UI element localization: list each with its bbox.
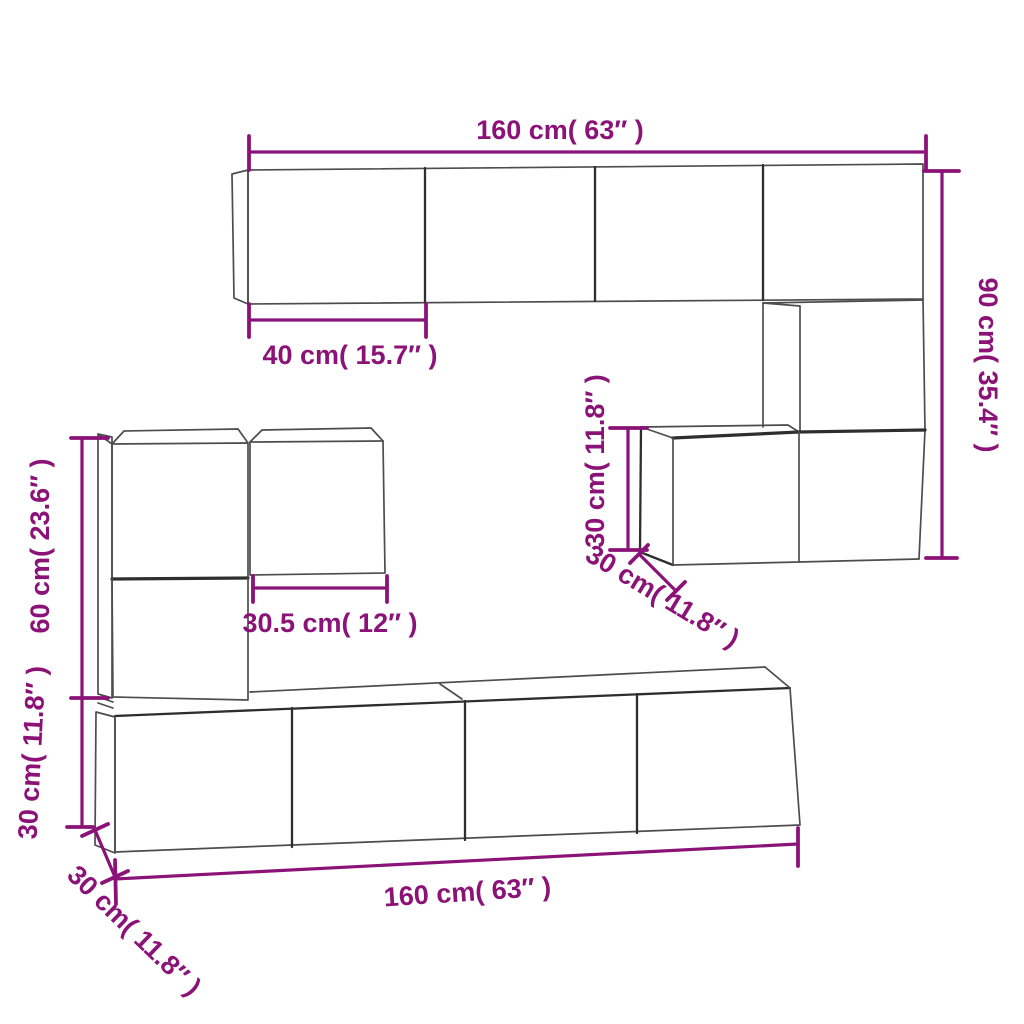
dimension-bottom-width-line	[115, 844, 798, 879]
dimension-upper-box-width: 30.5 cm( 12″ )	[242, 576, 417, 638]
left-upper-right-box-front	[250, 441, 385, 575]
left-cabinet-middle-divider	[112, 578, 248, 579]
dimension-bottom-width-label: 160 cm( 63″ )	[383, 872, 552, 913]
left-lower-box-front	[112, 578, 248, 700]
top-cabinet-front	[248, 164, 923, 304]
dimension-top-width: 160 cm( 63″ )	[249, 115, 926, 170]
dimension-middle-box-depth: 30 cm( 11.8″ )	[581, 539, 745, 654]
bottom-cabinet-top-face-junction	[440, 684, 462, 699]
dimension-bottom-width: 160 cm( 63″ )	[115, 828, 798, 913]
middle-box	[640, 425, 799, 565]
dimension-upper-box-label: 30.5 cm( 12″ )	[242, 608, 417, 638]
diagram-canvas: 160 cm( 63″ ) 40 cm( 15.7″ ) 90 cm( 35.4…	[0, 0, 1024, 1024]
left-upper-right-box-top-face	[250, 428, 383, 442]
bottom-cabinet-top-face-back-edge	[250, 667, 765, 692]
dimension-top-door-width: 40 cm( 15.7″ )	[249, 304, 438, 370]
left-upper-box-front	[112, 443, 248, 579]
dimension-middle-box-depth-label: 30 cm( 11.8″ )	[581, 539, 745, 654]
middle-box-front-face	[673, 432, 799, 565]
bottom-cabinet	[95, 667, 800, 853]
dimension-bottom-width-tick-left	[115, 860, 116, 904]
dimension-top-width-label: 160 cm( 63″ )	[476, 115, 644, 145]
dimension-bottom-depth-line	[95, 830, 115, 877]
left-upper-box-top-face	[112, 429, 248, 444]
right-column	[763, 299, 925, 562]
left-cabinet-side-panel	[98, 434, 112, 698]
dimension-middle-box-height-label: 30 cm( 11.8″ )	[580, 374, 610, 548]
dimension-left-height-label: 60 cm( 23.6″ )	[25, 458, 55, 633]
dimension-left-height: 60 cm( 23.6″ )	[25, 438, 108, 698]
right-column-bottom-edge	[799, 559, 919, 562]
middle-box-left-depth-edge	[640, 427, 641, 552]
bottom-cabinet-side-panel	[95, 712, 115, 853]
middle-box-top-front-edge	[673, 432, 799, 438]
top-cabinet-side-panel	[232, 170, 248, 304]
dimension-right-height: 90 cm( 35.4″ )	[924, 171, 1003, 558]
dimension-middle-box-height: 30 cm( 11.8″ )	[580, 374, 647, 550]
left-cabinet	[98, 428, 385, 708]
right-column-middle-divider	[799, 430, 925, 432]
left-cabinet-bottom-wedge-2	[98, 703, 113, 708]
dimension-bottom-height-label: 30 cm( 11.8″ )	[12, 665, 51, 840]
dimension-bottom-depth-label: 30 cm( 11.8″ )	[61, 859, 207, 1001]
dimension-right-height-label: 90 cm( 35.4″ )	[973, 277, 1003, 452]
dimension-top-door-label: 40 cm( 15.7″ )	[262, 340, 437, 370]
top-cabinet	[232, 164, 923, 304]
bottom-cabinet-top-face-right-slant	[765, 667, 790, 688]
furniture-dimension-diagram: 160 cm( 63″ ) 40 cm( 15.7″ ) 90 cm( 35.4…	[0, 0, 1024, 1024]
